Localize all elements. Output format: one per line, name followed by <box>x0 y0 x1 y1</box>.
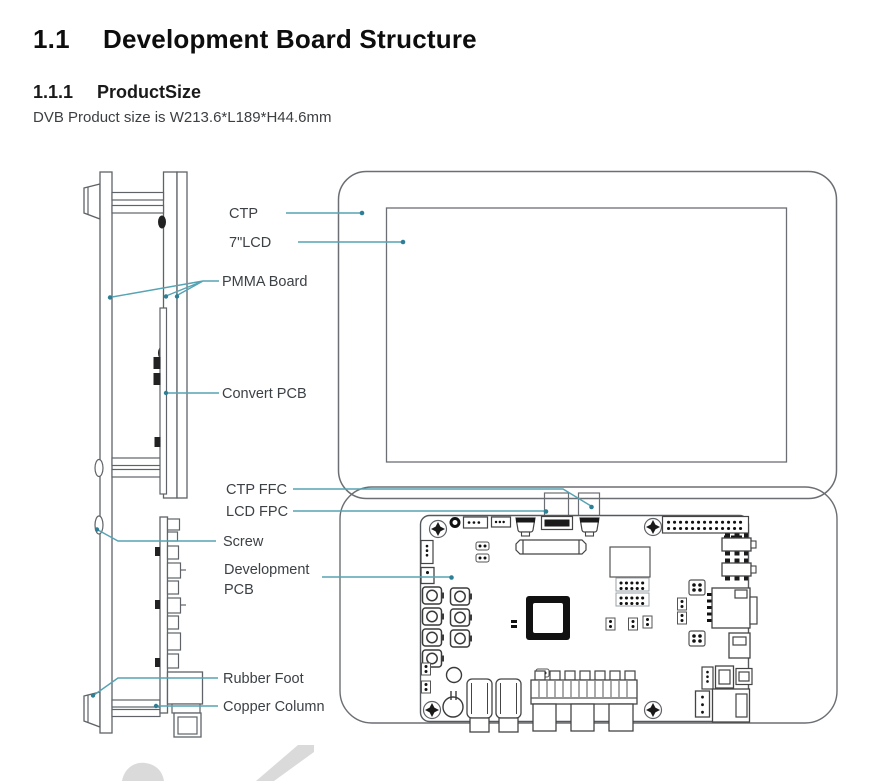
side-screw-head <box>95 460 103 477</box>
label-convert-pcb: Convert PCB <box>222 386 307 402</box>
screw-icon <box>645 702 662 719</box>
speaker-circle <box>447 668 462 683</box>
label-copper-column: Copper Column <box>223 699 325 715</box>
zif-connector <box>516 540 586 554</box>
label-ctp: CTP <box>229 206 258 222</box>
jumper-block <box>689 631 705 646</box>
ic-outline <box>610 547 650 577</box>
label-rubber-foot: Rubber Foot <box>223 671 304 687</box>
label-7lcd: 7"LCD <box>229 235 271 251</box>
ctp-ffc-cable <box>545 493 569 516</box>
top-bracket <box>84 184 100 219</box>
watermark <box>122 745 314 781</box>
usb-host-connector <box>722 536 756 553</box>
label-screw: Screw <box>223 534 264 550</box>
screw-icon <box>424 702 441 719</box>
usb-host-connector <box>722 561 756 578</box>
subsection-heading: 1.1.1ProductSize <box>33 82 201 103</box>
lcd-screen <box>387 208 787 462</box>
back-panel-bar <box>100 172 112 733</box>
product-size-text: DVB Product size is W213.6*L189*H44.6mm <box>33 109 331 126</box>
subsection-title: ProductSize <box>97 82 201 102</box>
audio-jack <box>496 679 521 732</box>
screw-icon <box>430 521 447 538</box>
convert-pcb-strip <box>160 308 167 494</box>
section-title: Development Board Structure <box>103 24 477 54</box>
audio-jack <box>467 679 492 732</box>
power-button <box>443 697 463 717</box>
sd-card-slot <box>710 588 758 628</box>
label-development: Development <box>224 562 309 578</box>
screw-icon <box>645 519 662 536</box>
tactile-button <box>423 629 445 646</box>
section-number: 1.1 <box>33 24 103 55</box>
label-ctp-ffc: CTP FFC <box>226 482 287 498</box>
label-pmma-board: PMMA Board <box>222 274 307 290</box>
label-lcd-fpc: LCD FPC <box>226 504 288 520</box>
subsection-number: 1.1.1 <box>33 82 97 103</box>
tactile-button <box>451 588 473 605</box>
side-view <box>84 172 203 737</box>
tactile-button <box>423 608 445 625</box>
tactile-button <box>451 609 473 626</box>
front-shell-outline <box>339 172 837 499</box>
pcb-top-view <box>421 516 758 733</box>
pin-header <box>663 517 749 534</box>
label-development-pcb: PCB <box>224 582 254 598</box>
dev-pcb-strip <box>160 517 168 713</box>
tactile-button <box>423 587 445 604</box>
jumper-block <box>689 580 705 595</box>
ctp-bar <box>177 172 187 498</box>
diagram-labels: CTP 7"LCD PMMA Board Convert PCB CTP FFC… <box>222 206 325 715</box>
document-page: 1.1Development Board Structure 1.1.1Prod… <box>0 0 879 781</box>
tactile-button <box>451 630 473 647</box>
bottom-connector-block <box>531 671 637 731</box>
section-heading: 1.1Development Board Structure <box>33 24 477 55</box>
